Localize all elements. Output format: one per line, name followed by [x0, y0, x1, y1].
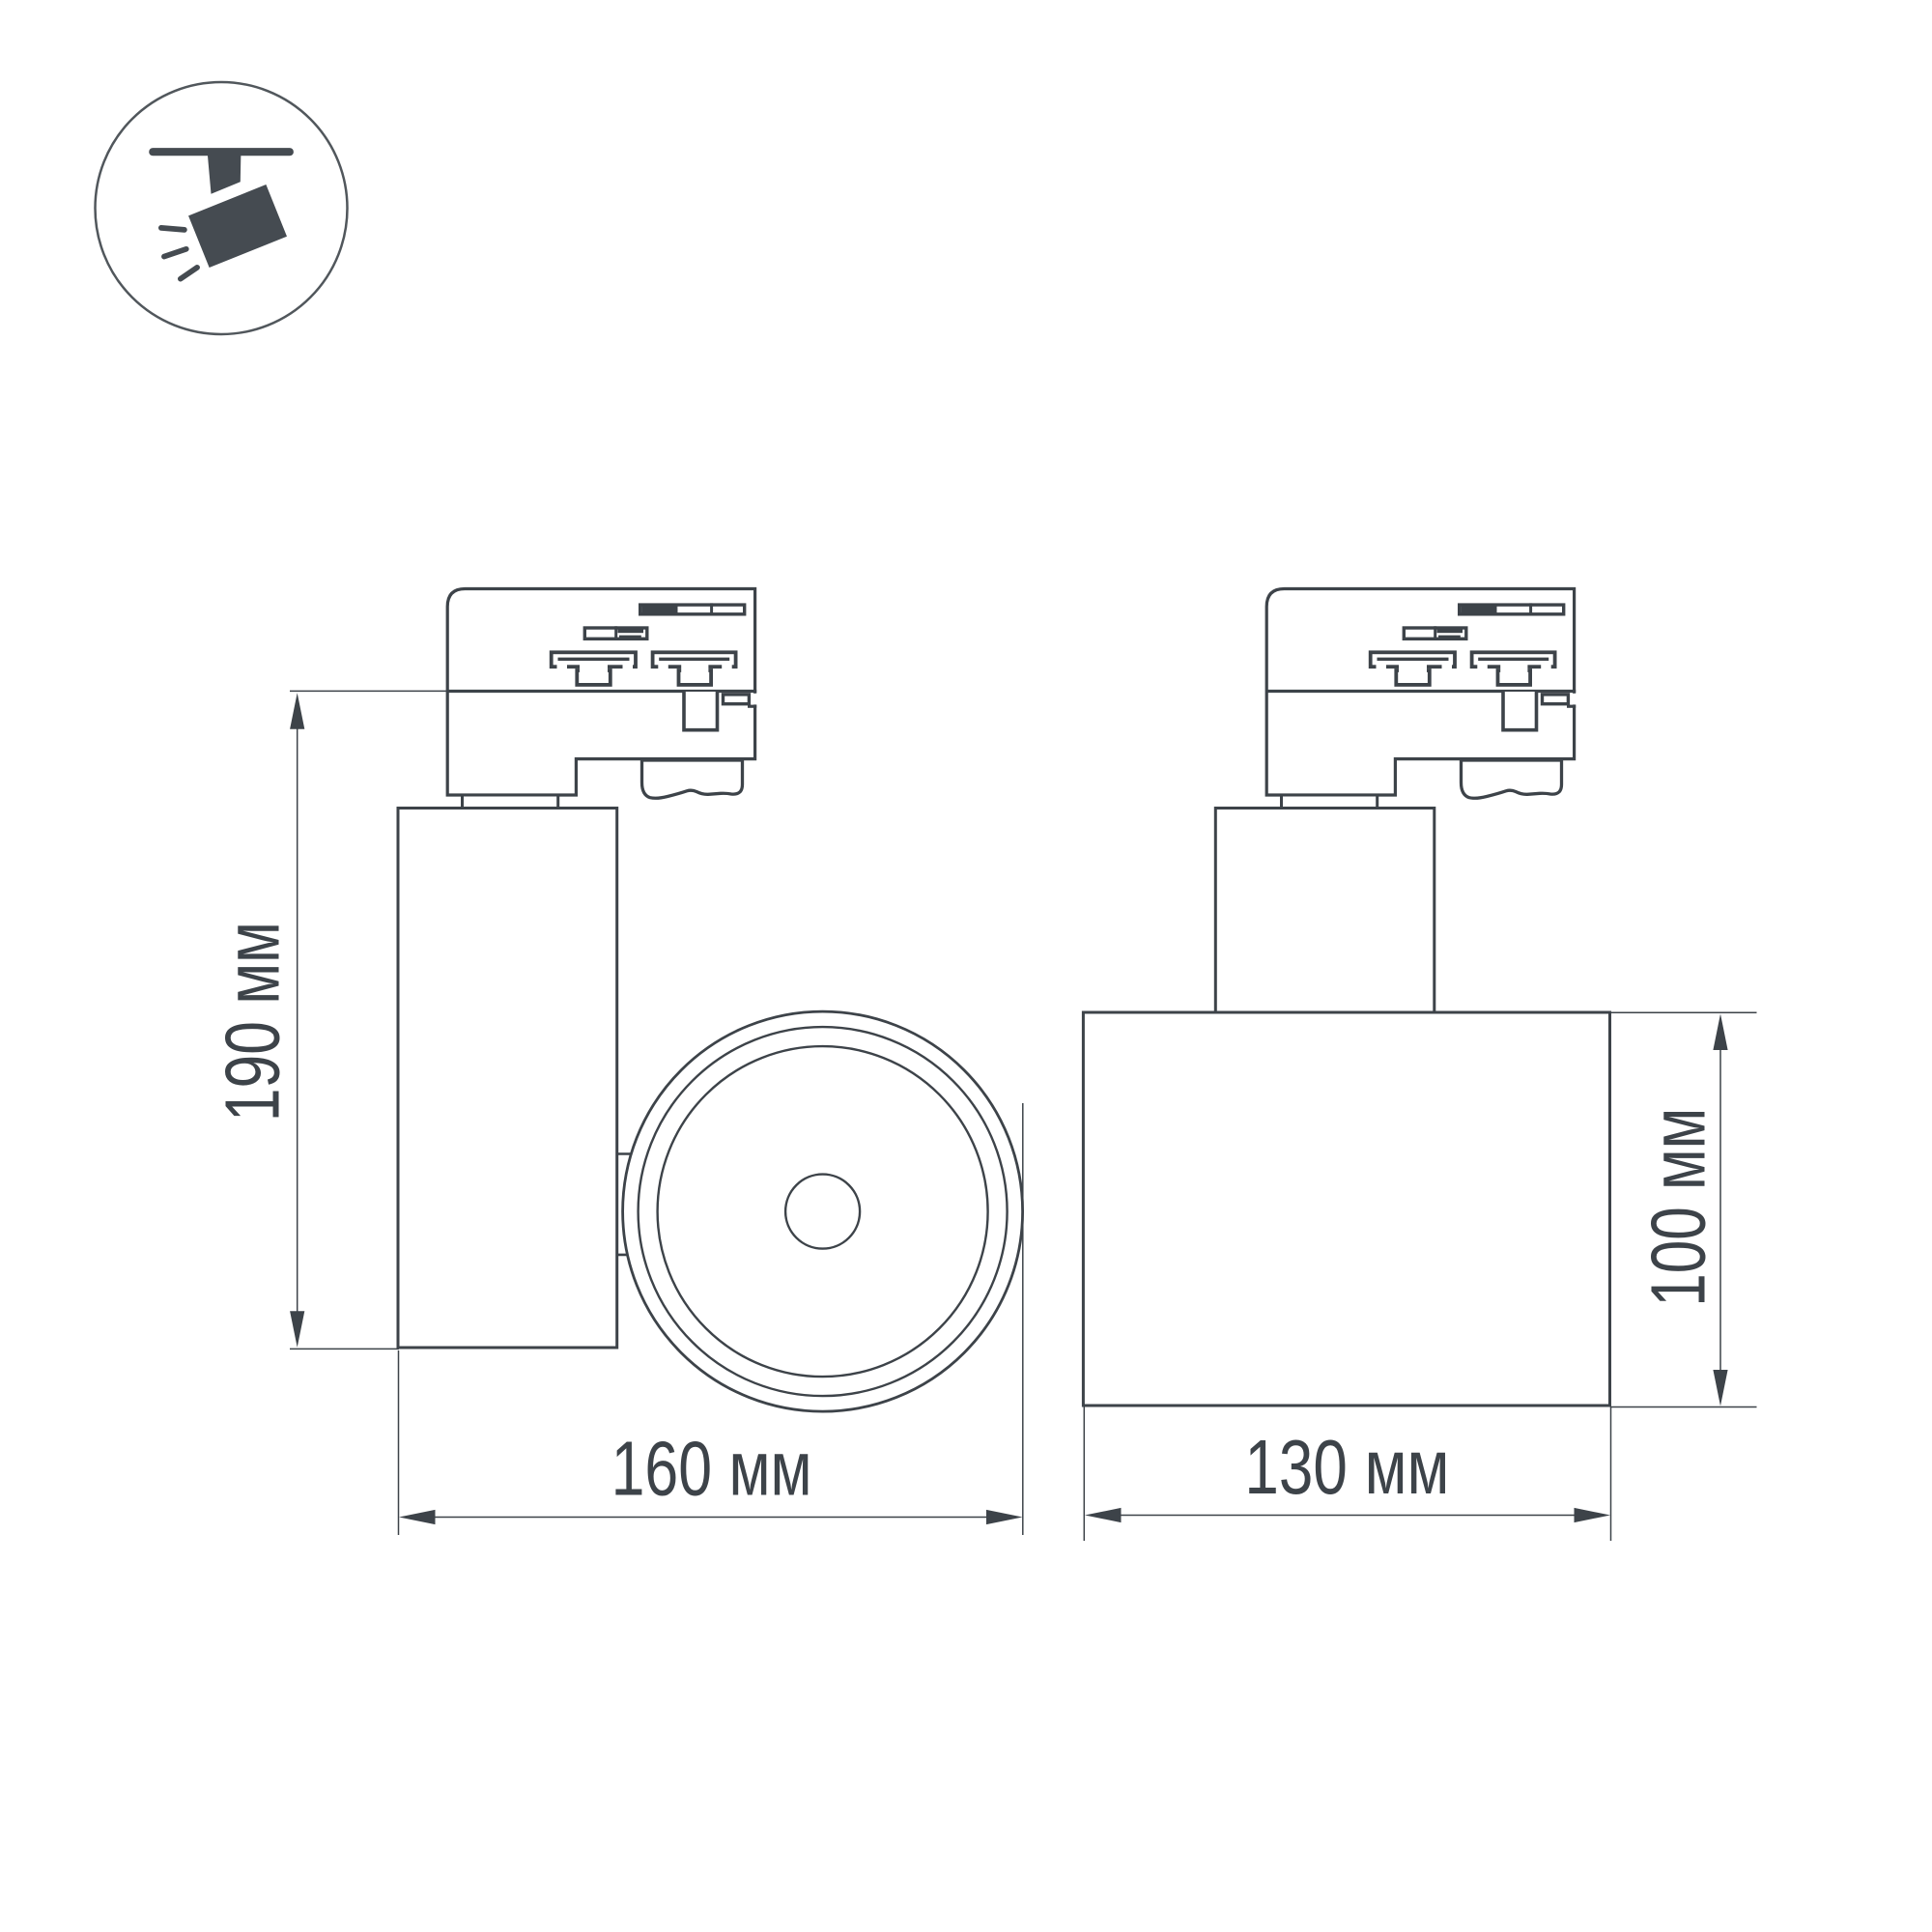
svg-text:190 мм: 190 мм	[210, 922, 296, 1122]
svg-text:100 мм: 100 мм	[1635, 1108, 1721, 1307]
svg-text:160 мм: 160 мм	[611, 1426, 812, 1512]
svg-text:130 мм: 130 мм	[1244, 1424, 1449, 1510]
